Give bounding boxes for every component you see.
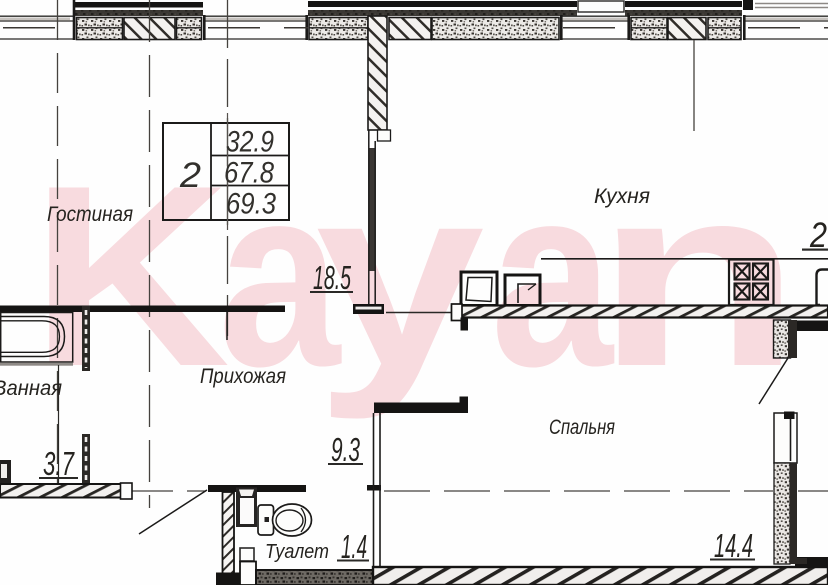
svg-text:32.9: 32.9 — [226, 126, 274, 159]
svg-text:Гостиная: Гостиная — [47, 203, 133, 226]
svg-text:Спальня: Спальня — [549, 416, 615, 439]
svg-text:18.5: 18.5 — [313, 259, 351, 296]
svg-text:Туалет: Туалет — [265, 541, 329, 563]
svg-text:9.3: 9.3 — [331, 431, 360, 468]
svg-text:Ванная: Ванная — [0, 377, 62, 400]
svg-text:3.7: 3.7 — [43, 445, 75, 482]
svg-text:67.8: 67.8 — [224, 157, 274, 190]
svg-text:Кухня: Кухня — [594, 185, 650, 208]
svg-text:2: 2 — [179, 156, 201, 195]
svg-text:14.4: 14.4 — [714, 527, 753, 564]
svg-text:n: n — [595, 132, 801, 420]
svg-text:1.4: 1.4 — [341, 528, 367, 565]
svg-text:Прихожая: Прихожая — [200, 365, 286, 388]
svg-text:69.3: 69.3 — [226, 188, 276, 221]
